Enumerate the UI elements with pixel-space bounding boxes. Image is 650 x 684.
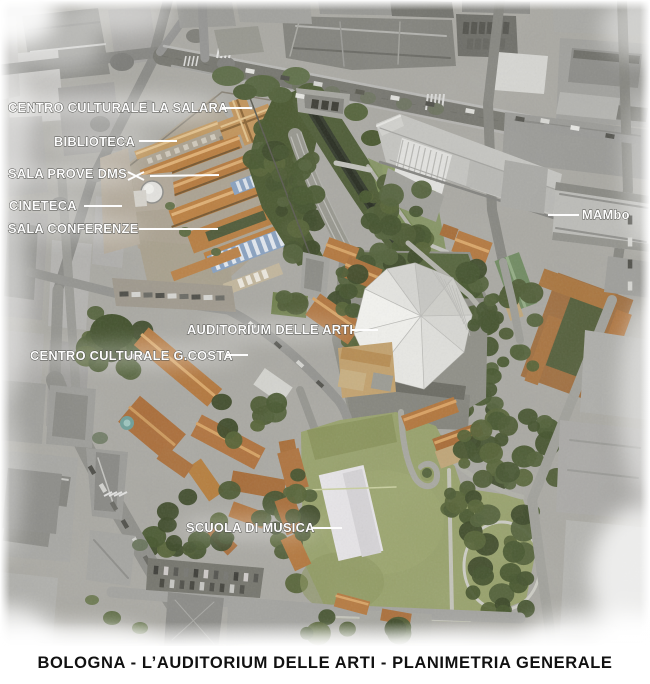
svg-text:SCUOLA DI MUSICA: SCUOLA DI MUSICA — [186, 520, 315, 535]
svg-text:SALA CONFERENZE: SALA CONFERENZE — [8, 221, 139, 236]
svg-text:BIBLIOTECA: BIBLIOTECA — [54, 134, 135, 149]
svg-text:SALA PROVE DMS: SALA PROVE DMS — [8, 166, 127, 181]
svg-text:CINETECA: CINETECA — [9, 198, 77, 213]
svg-text:CENTRO CULTURALE LA SALARA: CENTRO CULTURALE LA SALARA — [8, 100, 228, 115]
svg-text:MAMbo: MAMbo — [582, 207, 630, 222]
svg-text:AUDITORIUM DELLE ARTI: AUDITORIUM DELLE ARTI — [187, 322, 353, 337]
svg-text:BOLOGNA - L’AUDITORIUM DELLE A: BOLOGNA - L’AUDITORIUM DELLE ARTI - PLAN… — [37, 654, 612, 672]
svg-text:CENTRO CULTURALE G.COSTA: CENTRO CULTURALE G.COSTA — [30, 348, 233, 363]
